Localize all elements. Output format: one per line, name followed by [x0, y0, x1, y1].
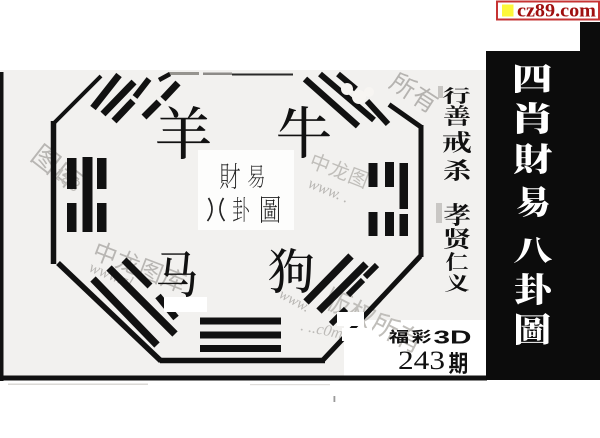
svg-text:cz89.com: cz89.com	[517, 2, 597, 22]
svg-text:3D: 3D	[434, 328, 472, 348]
svg-text:243: 243	[398, 346, 445, 375]
